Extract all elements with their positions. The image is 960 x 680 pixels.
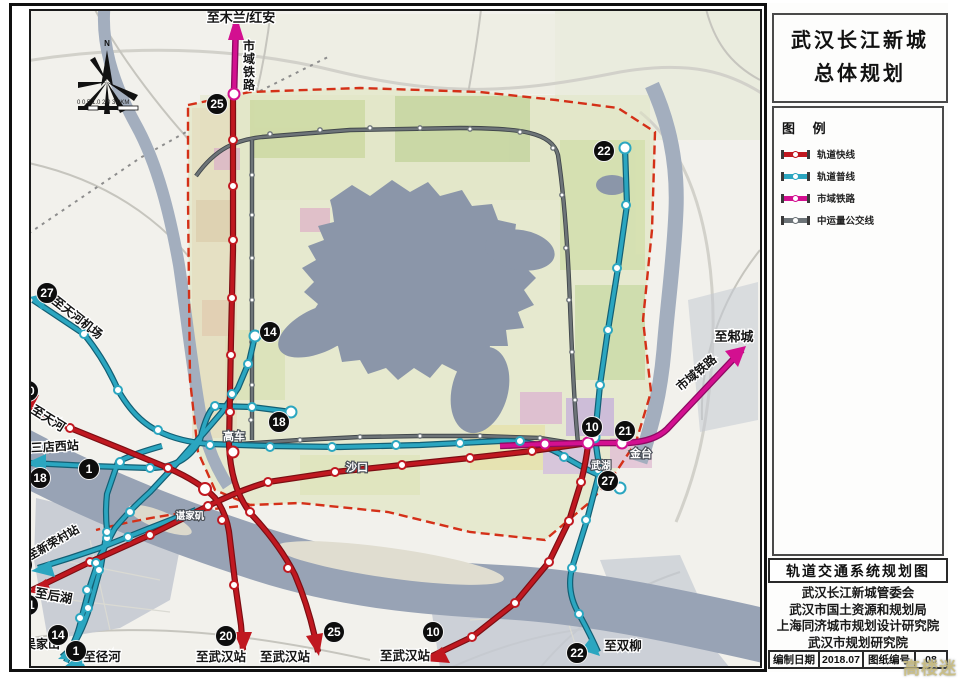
sheet-title-box: 轨道交通系统规划图 xyxy=(768,558,948,583)
local-line-symbol xyxy=(782,174,809,179)
info-panel: 武汉长江新城 总体规划 图 例 轨道快线轨道普线市域铁路中运量公交线 轨道交通系… xyxy=(764,3,948,672)
line-badge-10: 10 xyxy=(582,417,603,438)
plan-title-line2: 总体规划 xyxy=(814,58,906,91)
svg-text:25: 25 xyxy=(327,625,341,639)
legend-items: 轨道快线轨道普线市域铁路中运量公交线 xyxy=(782,147,934,227)
svg-text:27: 27 xyxy=(601,474,615,488)
svg-text:27: 27 xyxy=(40,286,54,300)
line-badge-27: 27 xyxy=(37,283,58,304)
legend-row-express: 轨道快线 xyxy=(782,147,934,161)
line-badge-22: 22 xyxy=(567,643,588,664)
line-badge-21: 21 xyxy=(615,421,636,442)
svg-text:25: 25 xyxy=(210,97,224,111)
direction-label: 至径河 xyxy=(83,649,121,664)
line-badge-1: 1 xyxy=(66,641,87,662)
svg-text:22: 22 xyxy=(570,646,584,660)
direction-label: 至双柳 xyxy=(604,638,642,653)
legend-title: 图 例 xyxy=(782,118,934,137)
field-tint xyxy=(240,14,560,94)
credits-block: 武汉长江新城管委会武汉市国土资源和规划局上海同济城市规划设计研究院武汉市规划研究… xyxy=(768,585,948,651)
line-badge-20: 20 xyxy=(18,381,39,402)
direction-label: 至木兰/红安 xyxy=(207,10,276,25)
place-label: 金台 xyxy=(629,446,652,460)
line-badge-18: 18 xyxy=(269,412,290,433)
svg-text:10: 10 xyxy=(585,420,599,434)
line-badge-20: 20 xyxy=(216,626,237,647)
legend-box: 图 例 轨道快线轨道普线市域铁路中运量公交线 xyxy=(772,106,944,556)
direction-label: 至武汉站 xyxy=(196,649,247,664)
line-badge-22: 22 xyxy=(594,141,615,162)
credit-line: 武汉长江新城管委会 xyxy=(768,585,948,602)
direction-label: 至邾城 xyxy=(714,329,753,344)
legend-label: 轨道普线 xyxy=(817,169,855,183)
place-label: 沙口 xyxy=(346,461,368,474)
svg-text:1: 1 xyxy=(73,644,80,658)
legend-row-regional: 市域铁路 xyxy=(782,191,934,205)
svg-text:18: 18 xyxy=(33,471,47,485)
date-label-cell: 编制日期 xyxy=(770,652,820,667)
svg-text:14: 14 xyxy=(263,325,277,339)
legend-row-local: 轨道普线 xyxy=(782,169,934,183)
map-content: N 0 0.5 1.0 2.0 3.0KM 高车沙口谌家矶金台武湖 至木兰/红安… xyxy=(12,0,767,668)
svg-text:20: 20 xyxy=(219,629,233,643)
place-label: 高车 xyxy=(223,429,245,443)
legend-label: 中运量公交线 xyxy=(817,213,874,227)
date-value-cell: 2018.07 xyxy=(820,652,864,667)
express-line-symbol xyxy=(782,152,809,157)
svg-text:22: 22 xyxy=(597,144,611,158)
north-label: N xyxy=(104,39,110,48)
legend-label: 市域铁路 xyxy=(817,191,855,205)
svg-text:14: 14 xyxy=(51,628,65,642)
line-badge-27: 27 xyxy=(598,471,619,492)
line-badge-25: 25 xyxy=(324,622,345,643)
direction-label: 至武汉站 xyxy=(260,649,311,664)
credit-line: 武汉市规划研究院 xyxy=(768,635,948,652)
svg-text:18: 18 xyxy=(272,415,286,429)
line-badge-21: 21 xyxy=(18,595,39,616)
place-label: 谌家矶 xyxy=(176,510,205,522)
direction-label: 至武汉站 xyxy=(380,648,431,663)
svg-text:23: 23 xyxy=(15,558,29,572)
svg-text:10: 10 xyxy=(426,625,440,639)
plan-title-box: 武汉长江新城 总体规划 xyxy=(772,13,948,103)
planning-map-page: N 0 0.5 1.0 2.0 3.0KM 高车沙口谌家矶金台武湖 至木兰/红安… xyxy=(0,0,960,680)
svg-text:20: 20 xyxy=(21,384,35,398)
credit-line: 上海同济城市规划设计研究院 xyxy=(768,618,948,635)
svg-text:0 0.5 1.0 2.0 3.0KM: 0 0.5 1.0 2.0 3.0KM xyxy=(77,100,129,106)
credit-line: 武汉市国土资源和规划局 xyxy=(768,602,948,619)
line-badge-18: 18 xyxy=(30,468,51,489)
direction-label: 至三店西站 xyxy=(18,437,79,455)
scale-bar: 0 0.5 1.0 2.0 3.0KM xyxy=(77,100,138,110)
svg-text:1: 1 xyxy=(86,462,93,476)
legend-label: 轨道快线 xyxy=(817,147,855,161)
brt-line-symbol xyxy=(782,218,809,223)
line-badge-14: 14 xyxy=(48,625,69,646)
line-badge-14: 14 xyxy=(260,322,281,343)
svg-text:21: 21 xyxy=(21,598,35,612)
direction-label: 市域铁路 xyxy=(243,38,256,92)
line-badge-10: 10 xyxy=(423,622,444,643)
watermark: 高楼迷 xyxy=(903,654,957,679)
legend-row-brt: 中运量公交线 xyxy=(782,213,934,227)
line-badge-25: 25 xyxy=(207,94,228,115)
svg-text:21: 21 xyxy=(618,424,632,438)
line-badge-1: 1 xyxy=(79,459,100,480)
plan-title-line1: 武汉长江新城 xyxy=(791,25,929,58)
regional-line-symbol xyxy=(782,196,809,201)
